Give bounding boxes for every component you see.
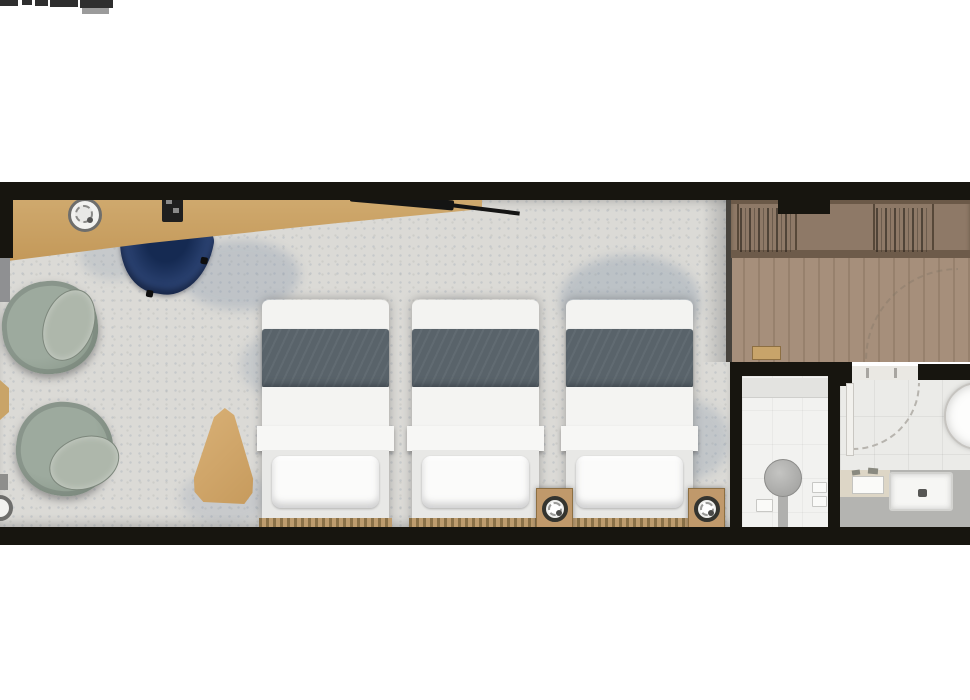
bed-fold	[407, 426, 544, 451]
bed-pillow	[422, 456, 529, 508]
wc-fixture	[812, 482, 827, 493]
wall-bottom	[0, 527, 970, 545]
wardrobe	[731, 200, 970, 258]
wall-left-window	[0, 258, 10, 302]
bed-blanket	[412, 329, 539, 388]
bathroom-door-swing-arc	[853, 383, 920, 455]
wall-left	[0, 182, 13, 258]
bed-pillow	[576, 456, 683, 508]
bed-blanket	[566, 329, 693, 388]
bed-foot-sheet	[262, 300, 389, 330]
chair-leg	[146, 290, 154, 298]
wall-top-notch	[778, 182, 830, 214]
bathroom-door-leaf	[846, 383, 854, 456]
cropped-text-fragment	[35, 0, 48, 6]
desk-cup	[87, 217, 93, 223]
shower-fixture	[764, 459, 802, 497]
entry-door-swing-arc	[865, 268, 958, 360]
bed-blanket	[262, 329, 389, 388]
wardrobe-divider	[737, 204, 739, 254]
cut-off-element	[0, 474, 8, 490]
bathroom-door-threshold	[852, 366, 918, 380]
wardrobe-divider	[932, 204, 934, 254]
cropped-text-fragment	[50, 0, 78, 7]
armchair	[10, 396, 119, 503]
bed	[412, 299, 539, 528]
bed-foot-sheet	[566, 300, 693, 330]
armchair	[0, 276, 103, 379]
wc-fixture	[756, 499, 773, 512]
bed-foot-sheet	[412, 300, 539, 330]
entry-stool	[752, 346, 781, 360]
bed	[262, 299, 389, 528]
cropped-text-fragment	[80, 0, 113, 8]
vanity-item	[868, 468, 878, 475]
lamp	[694, 496, 720, 522]
desk-tray	[68, 198, 102, 232]
wall-wc-right	[828, 362, 840, 527]
wall-wc-top	[730, 362, 840, 376]
wall-bath-top-right	[918, 364, 970, 380]
cropped-text-fragment	[22, 0, 32, 5]
faucet	[918, 489, 927, 497]
bed-duvet	[566, 387, 693, 427]
vanity-tray	[852, 476, 884, 494]
bed-pillow	[272, 456, 379, 508]
bed-fold	[257, 426, 394, 451]
desk-tray-ring	[75, 205, 93, 223]
cropped-text-fragment	[82, 8, 109, 14]
threshold-tick	[894, 368, 897, 378]
bed-duvet	[262, 387, 389, 427]
hanging-clothes	[740, 208, 793, 252]
wc-fixture	[812, 496, 827, 507]
floor-transition-shadow	[702, 200, 728, 362]
nightstand	[536, 488, 573, 529]
wardrobe-divider	[873, 204, 875, 254]
threshold-tick	[866, 368, 869, 378]
bed-fold	[561, 426, 698, 451]
wc-shower-threshold	[742, 378, 828, 398]
bed	[566, 299, 693, 528]
chair-leg	[200, 257, 208, 265]
shower-fixture-stem	[778, 495, 788, 528]
lamp	[542, 496, 568, 522]
bed-duvet	[412, 387, 539, 427]
wall-wc-left	[730, 362, 742, 527]
hanging-clothes	[876, 208, 930, 252]
floorplan-image	[0, 0, 970, 700]
nightstand	[688, 488, 725, 529]
cropped-text-fragment	[0, 0, 18, 6]
